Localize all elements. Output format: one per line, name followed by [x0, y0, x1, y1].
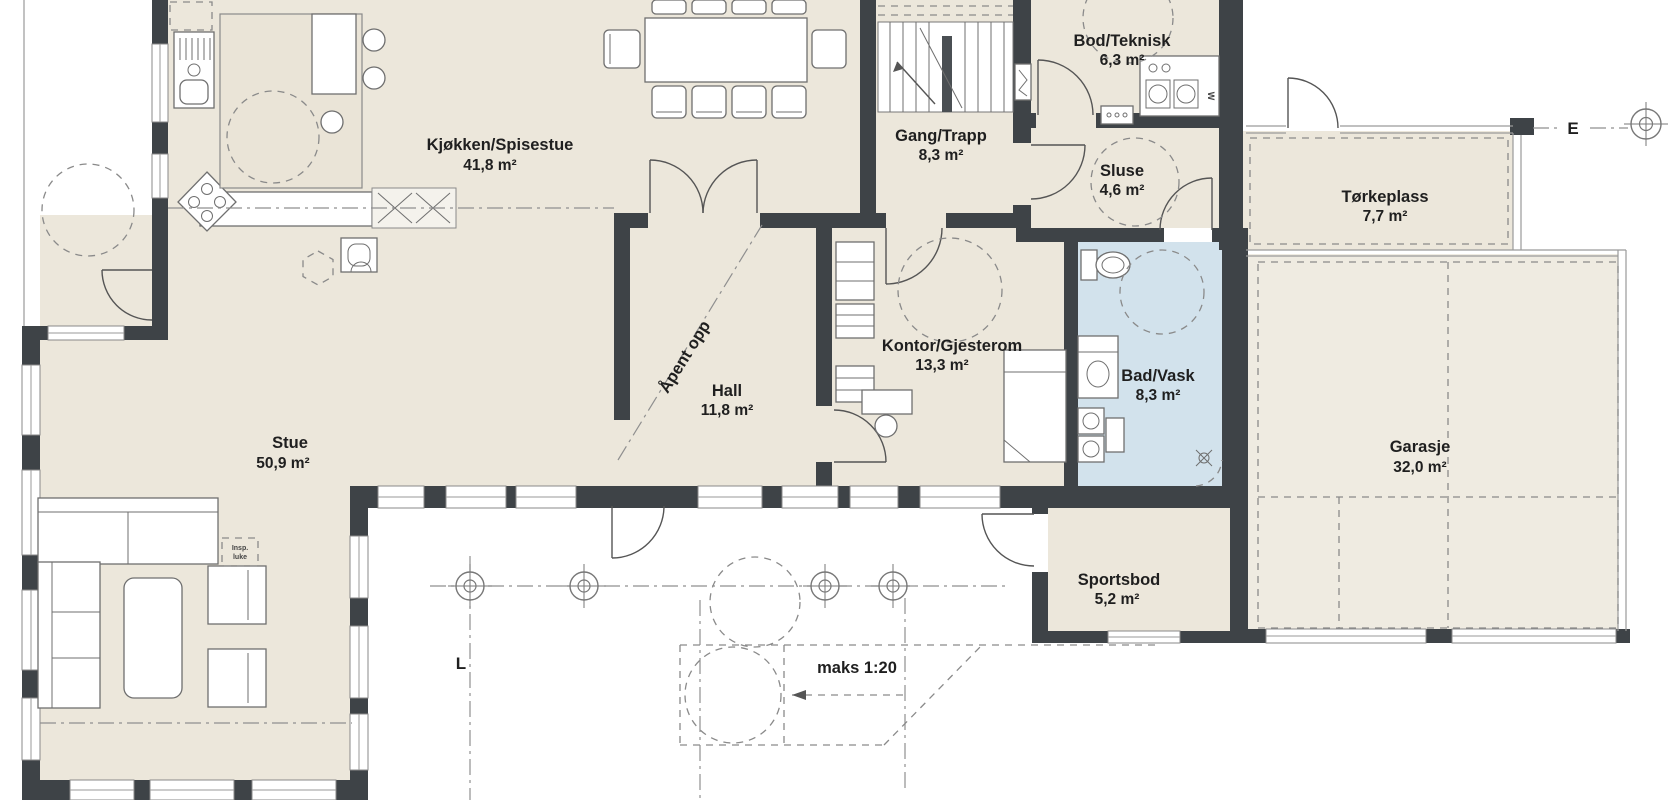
label-garasje-area: 32,0 m²	[1393, 459, 1446, 476]
wall-sportsbod-north	[1016, 486, 1248, 508]
laundry-machines: W	[1140, 56, 1219, 116]
wall-gang-south-a	[860, 213, 886, 228]
kitchen-sink	[174, 32, 214, 108]
wall-gang-east-b	[1013, 205, 1031, 228]
grid-bubble	[803, 564, 847, 608]
bar-stool	[363, 29, 385, 51]
wall-bath-north-a	[1016, 228, 1164, 242]
label-kjokken-area: 41,8 m²	[463, 157, 516, 174]
bar-stool	[363, 67, 385, 89]
axis-label-right: E	[1567, 119, 1578, 138]
grid-bubble	[871, 564, 915, 608]
floor-stue-upper	[40, 215, 618, 490]
grid-bubble	[1624, 102, 1668, 146]
grid-bubble	[562, 564, 606, 608]
label-sluse-area: 4,6 m²	[1100, 182, 1145, 199]
wall-dining-gang	[860, 0, 876, 228]
wall-bod-south-a	[1031, 113, 1036, 128]
wall-torkeplass-corner	[1510, 118, 1534, 135]
shelving	[836, 242, 874, 402]
label-torkeplass-name: Tørkeplass	[1341, 188, 1428, 206]
wall-hall-kontor-a	[816, 228, 832, 406]
coffee-table	[124, 578, 182, 698]
label-garasje-name: Garasje	[1390, 438, 1451, 456]
wall-bath-east	[1222, 228, 1248, 508]
label-kontor-name: Kontor/Gjesterom	[882, 337, 1022, 355]
bar-stool	[321, 111, 343, 133]
label-sportsbod-name: Sportsbod	[1078, 571, 1161, 589]
label-kontor-area: 13,3 m²	[915, 357, 968, 374]
wall-gang-south-b	[946, 213, 1016, 228]
label-kjokken-name: Kjøkken/Spisestue	[427, 136, 574, 154]
label-bad-name: Bad/Vask	[1121, 367, 1195, 385]
armchair	[208, 649, 266, 707]
bed	[1004, 350, 1066, 462]
label-bad-area: 8,3 m²	[1136, 387, 1181, 404]
label-torkeplass-area: 7,7 m²	[1363, 208, 1408, 225]
armchair	[208, 566, 266, 624]
fireplace	[341, 238, 377, 272]
toilet	[1081, 250, 1130, 280]
wall-bath-north-b	[1212, 228, 1222, 242]
label-bod-area: 6,3 m²	[1100, 52, 1145, 69]
label-sportsbod-area: 5,2 m²	[1095, 591, 1140, 608]
insp-label-2: luke	[233, 554, 247, 561]
dining-table	[645, 18, 807, 82]
wall-bod-east	[1219, 0, 1243, 250]
axis-label-bottom: L	[456, 654, 466, 673]
label-hall-name: Hall	[712, 382, 742, 400]
floor-plan-drawing: Insp. luke	[0, 0, 1670, 800]
floor-plan-page: Insp. luke	[0, 0, 1670, 800]
staircase	[878, 6, 1013, 112]
label-gang-area: 8,3 m²	[919, 147, 964, 164]
wall-hatch	[1101, 106, 1133, 124]
label-gang-name: Gang/Trapp	[895, 127, 987, 145]
maks-label: maks 1:20	[817, 659, 897, 677]
door-hall-exterior	[612, 506, 664, 558]
wall-hall-west	[614, 215, 630, 420]
stair-divider	[942, 36, 952, 112]
label-sluse-name: Sluse	[1100, 162, 1144, 180]
grid-bubble	[448, 564, 492, 608]
insp-label-1: Insp.	[232, 545, 248, 552]
ramp-outline	[680, 645, 1160, 745]
label-bod-name: Bod/Teknisk	[1074, 32, 1172, 50]
label-stue-area: 50,9 m²	[256, 455, 309, 472]
vanity-sink	[1078, 336, 1118, 398]
desk	[862, 390, 912, 414]
wall-garage-west	[1230, 508, 1248, 643]
label-stue-name: Stue	[272, 434, 308, 452]
label-hall-area: 11,8 m²	[701, 402, 754, 419]
desk-chair	[875, 415, 897, 437]
wall-hall-north-a	[614, 213, 648, 228]
wall-hall-north-b	[760, 213, 864, 228]
washer-label: W	[1206, 92, 1216, 101]
electrical-panel	[1015, 64, 1031, 100]
door-torkeplass	[1288, 78, 1338, 128]
wall-hall-kontor-b	[816, 462, 832, 486]
wall-sportsbod-west-a	[1032, 508, 1048, 514]
door-sportsbod	[982, 514, 1034, 566]
ramp-arrow	[792, 690, 806, 700]
